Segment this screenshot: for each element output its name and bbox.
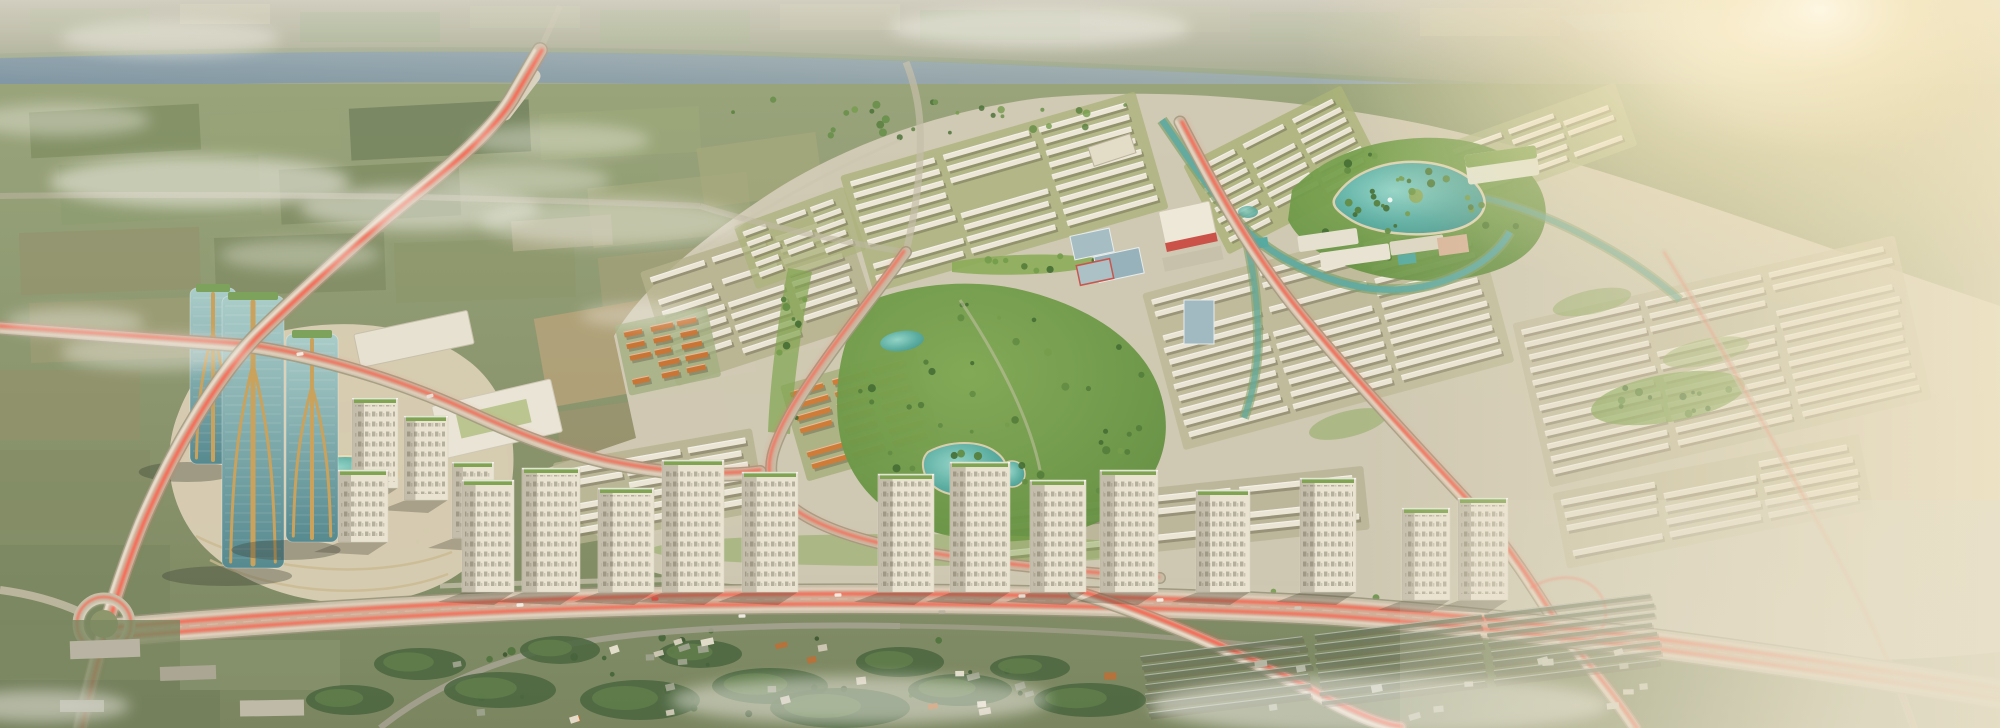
warm-tone-overlay: [0, 0, 2000, 728]
masterplan-aerial-render: Photorealistic bird's-eye CGI of a large…: [0, 0, 2000, 728]
scene-canvas: [0, 0, 2000, 728]
layer-haze-sunglow: [0, 0, 2000, 728]
